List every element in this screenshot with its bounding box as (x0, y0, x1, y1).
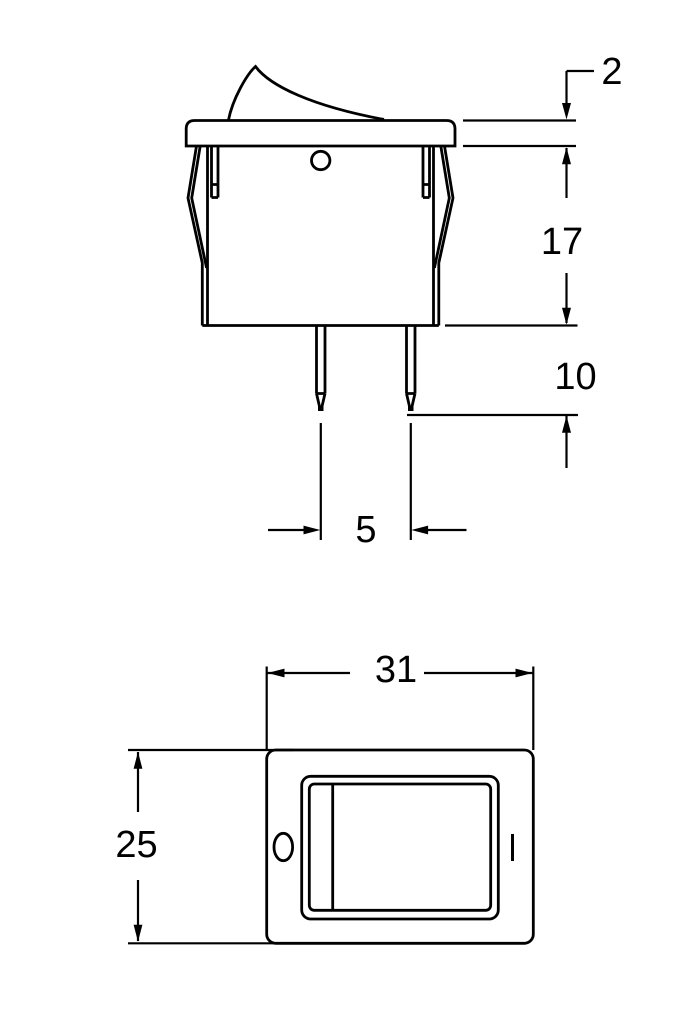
arrowhead (562, 103, 571, 120)
off-symbol-marking (274, 833, 293, 860)
terminal-pin-left (317, 326, 326, 410)
latch-leg-left (212, 146, 219, 198)
front-view (267, 750, 534, 943)
front-view-dimensions: 31 25 (115, 649, 533, 943)
arrowhead (268, 669, 285, 678)
dim-label-housing-depth: 17 (541, 221, 583, 263)
arrowhead (516, 669, 533, 678)
drawing-canvas: 2 17 10 5 31 25 (0, 0, 684, 1024)
spring-clip-left (188, 146, 207, 326)
extension-lines (128, 667, 533, 944)
rocker-actuator (229, 67, 385, 121)
dim-label-terminal-length: 10 (554, 356, 596, 398)
mounting-flange (186, 121, 455, 147)
terminal-pin-right (407, 326, 416, 410)
arrowhead (134, 752, 143, 769)
rocker-face (309, 784, 490, 910)
side-view-dimensions: 2 17 10 5 (268, 51, 623, 551)
dimension-lines (138, 673, 533, 941)
side-view (186, 67, 455, 410)
bezel-outline (267, 750, 534, 943)
arrowhead (562, 308, 571, 325)
technical-drawing: 2 17 10 5 31 25 (0, 0, 684, 1024)
arrowhead (134, 925, 143, 942)
dim-label-flange-thickness: 2 (601, 51, 622, 93)
arrowhead (411, 526, 428, 535)
arrowhead (562, 147, 571, 164)
pivot-hole (312, 151, 330, 169)
dim-label-height: 25 (115, 824, 157, 866)
dim-label-terminal-spacing: 5 (355, 509, 376, 551)
rocker-recess (302, 776, 499, 919)
arrowhead (562, 416, 571, 433)
arrowhead (304, 526, 321, 535)
dim-label-width: 31 (375, 649, 417, 691)
spring-clip-right (434, 146, 453, 326)
dimension-lines (268, 71, 594, 530)
housing-body (202, 146, 438, 326)
latch-leg-right (423, 146, 430, 198)
